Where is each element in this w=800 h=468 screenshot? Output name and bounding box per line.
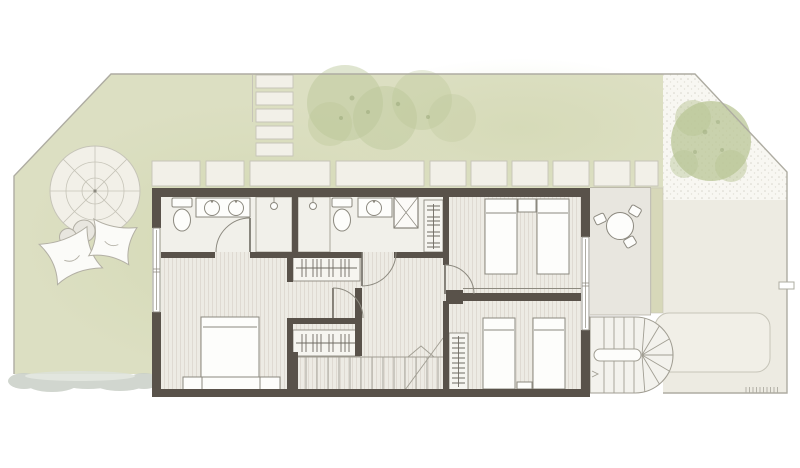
wall-stair-west bbox=[292, 352, 298, 390]
shower bbox=[256, 197, 292, 252]
foot-bench bbox=[183, 377, 280, 390]
wardrobe bbox=[424, 200, 443, 252]
wardrobe bbox=[293, 255, 360, 281]
wall-north bbox=[152, 188, 590, 197]
wall-east-lower bbox=[581, 330, 590, 397]
wardrobe bbox=[293, 330, 360, 356]
gate-notch bbox=[779, 282, 794, 289]
hedge-strip bbox=[8, 371, 160, 392]
stepping-stones bbox=[256, 75, 293, 156]
window-east bbox=[582, 237, 589, 330]
nightstand bbox=[517, 382, 532, 389]
round-table bbox=[607, 213, 634, 240]
spiral-center-rail bbox=[594, 349, 641, 361]
building bbox=[152, 188, 590, 397]
wall-west-lower bbox=[152, 312, 161, 397]
wall-bath-divider bbox=[292, 197, 298, 252]
paver-band bbox=[152, 161, 658, 186]
floor-plan-drawing bbox=[0, 0, 800, 468]
toilet bbox=[332, 198, 352, 231]
sliding-door-pocket bbox=[446, 290, 463, 304]
double-bed bbox=[201, 317, 259, 377]
sliding-partition bbox=[449, 293, 581, 301]
window-west bbox=[153, 228, 160, 312]
wall-bedroom3-west bbox=[443, 301, 449, 390]
single-bed bbox=[537, 199, 569, 274]
planter-strip bbox=[651, 188, 663, 313]
wall-hall-bedroom2 bbox=[443, 197, 449, 265]
wall-west-upper bbox=[152, 188, 161, 228]
service-shaft bbox=[394, 197, 418, 228]
single-bed bbox=[483, 318, 515, 389]
nightstand bbox=[518, 199, 536, 212]
floor-plan-canvas bbox=[0, 0, 800, 468]
balcony-floor bbox=[590, 188, 651, 315]
double-sink-vanity bbox=[196, 198, 250, 217]
single-bed bbox=[533, 318, 565, 389]
single-bed bbox=[485, 199, 517, 274]
toilet bbox=[172, 198, 192, 231]
wall-south bbox=[152, 389, 590, 397]
tree-canopy-gravel bbox=[670, 100, 751, 182]
shelf-wardrobe bbox=[449, 333, 468, 390]
wall-east-upper bbox=[581, 188, 590, 237]
sink-vanity bbox=[358, 198, 392, 217]
spiral-staircase bbox=[590, 317, 673, 393]
shower bbox=[298, 197, 330, 252]
